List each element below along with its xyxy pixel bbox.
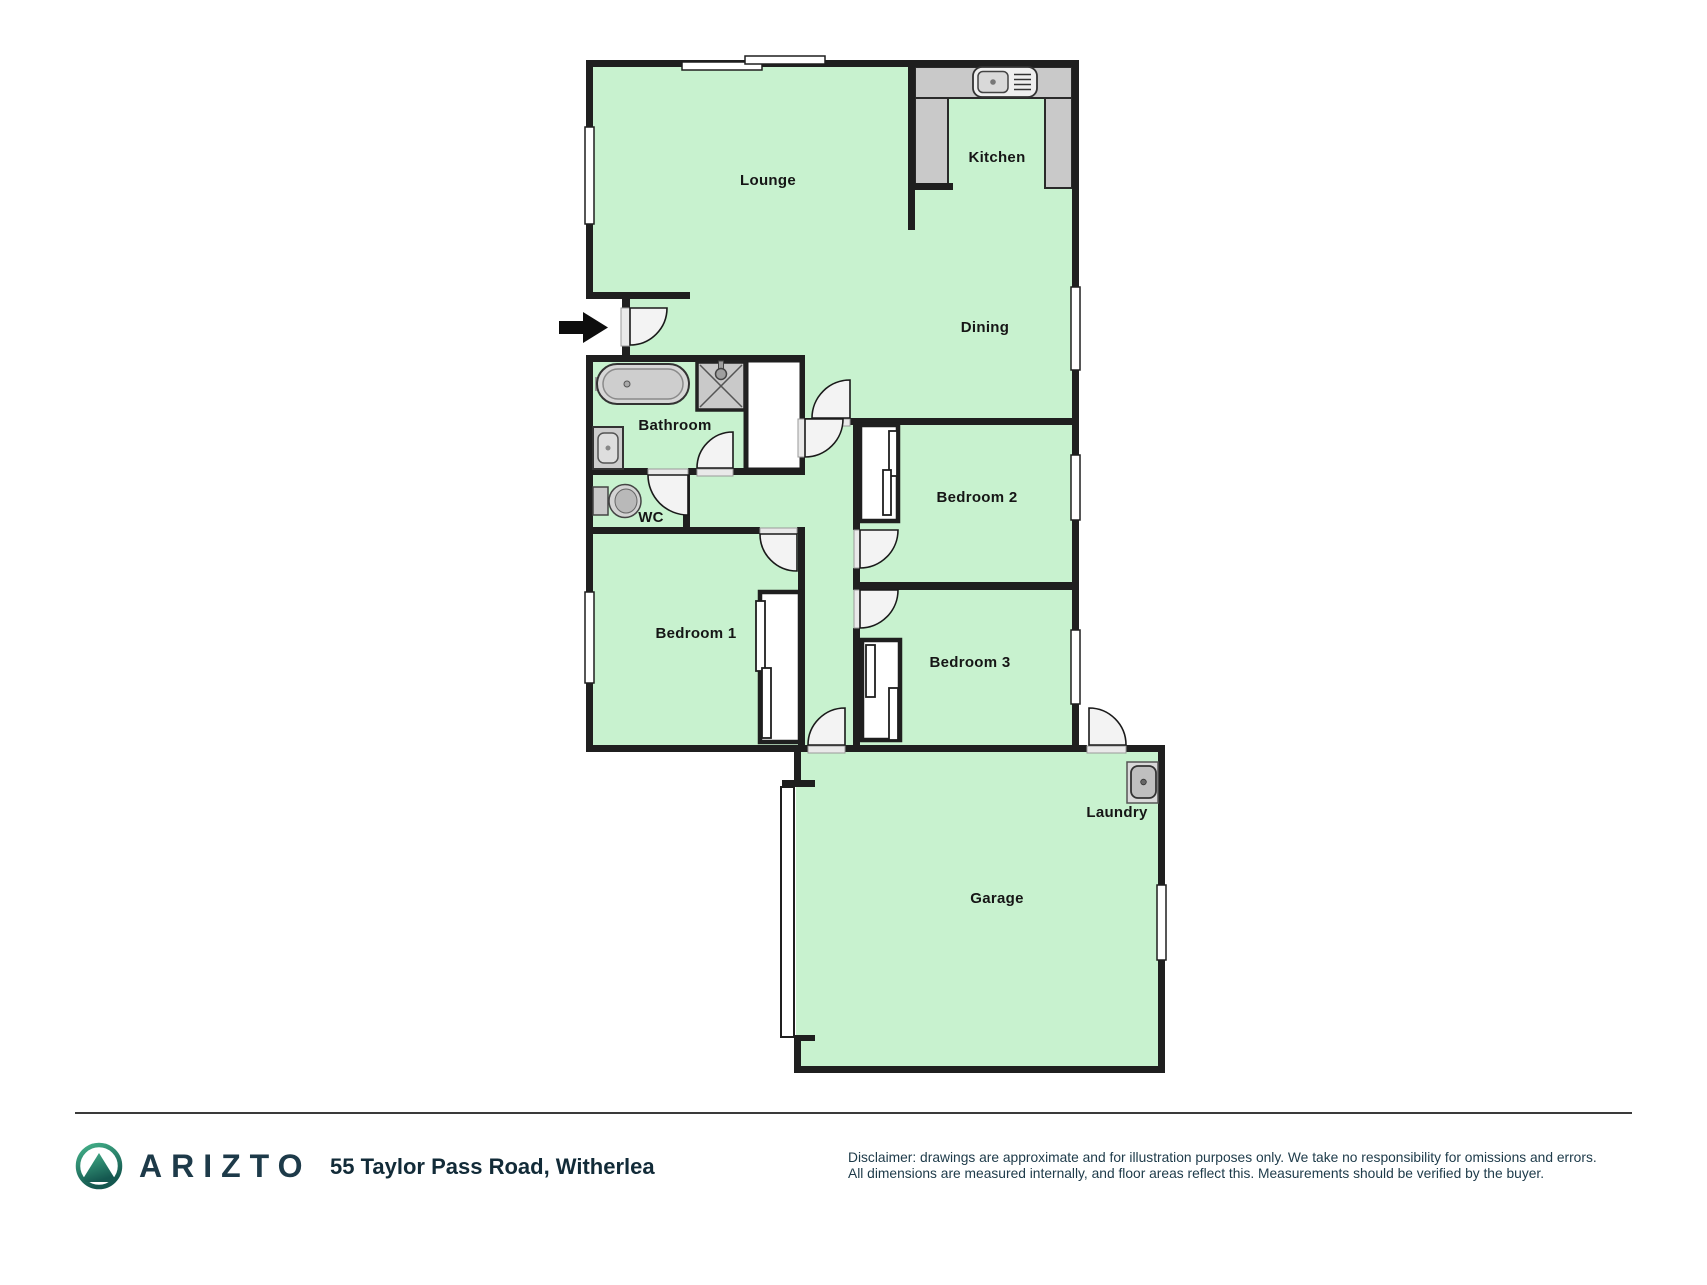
room-label-bedroom1: Bedroom 1 bbox=[655, 625, 736, 642]
bedroom2-wardrobe-panel bbox=[883, 470, 891, 515]
bathtub-icon bbox=[595, 364, 689, 404]
disclaimer-line-1: Disclaimer: drawings are approximate and… bbox=[848, 1150, 1597, 1166]
bathroom-door-leaf bbox=[697, 469, 733, 476]
window-bedroom1-left bbox=[585, 592, 594, 683]
garage-hall-door-leaf bbox=[808, 746, 845, 753]
linen-closet bbox=[746, 360, 802, 470]
laundry-door-swing bbox=[1089, 708, 1126, 745]
bedroom3-wardrobe-panel bbox=[889, 688, 898, 740]
shower-icon bbox=[697, 361, 745, 410]
bedroom1-wardrobe-panel bbox=[756, 601, 765, 671]
room-label-bedroom3: Bedroom 3 bbox=[929, 654, 1010, 671]
window-bedroom3-right bbox=[1071, 630, 1080, 704]
room-label-laundry: Laundry bbox=[1086, 804, 1148, 821]
window-lounge-left bbox=[585, 127, 594, 224]
laundry-tub-icon bbox=[1127, 762, 1158, 803]
window-bedroom2-right bbox=[1071, 455, 1080, 520]
floor-plan: Lounge Kitchen Dining Bathroom WC Bedroo… bbox=[0, 0, 1707, 1280]
brand-wordmark: ARIZTO bbox=[139, 1148, 312, 1185]
kitchen-sink-icon bbox=[973, 67, 1037, 97]
laundry-door-leaf bbox=[1087, 746, 1126, 753]
room-label-lounge: Lounge bbox=[740, 172, 796, 189]
garage-door bbox=[781, 787, 794, 1037]
disclaimer: Disclaimer: drawings are approximate and… bbox=[848, 1150, 1597, 1181]
room-label-dining: Dining bbox=[961, 319, 1009, 336]
window-dining-right bbox=[1071, 287, 1080, 370]
bedroom1-wardrobe-panel bbox=[762, 668, 771, 738]
arizto-logo-icon bbox=[75, 1142, 123, 1190]
room-label-wc: WC bbox=[638, 509, 664, 526]
floor-garage-block bbox=[796, 747, 1163, 1070]
room-label-bedroom2: Bedroom 2 bbox=[936, 489, 1017, 506]
room-label-kitchen: Kitchen bbox=[968, 149, 1025, 166]
brand: ARIZTO bbox=[75, 1142, 312, 1190]
disclaimer-line-2: All dimensions are measured internally, … bbox=[848, 1166, 1597, 1182]
entry-door-leaf bbox=[621, 308, 630, 346]
property-address: 55 Taylor Pass Road, Witherlea bbox=[330, 1154, 655, 1180]
room-label-bathroom: Bathroom bbox=[638, 417, 711, 434]
toilet-icon bbox=[593, 485, 641, 518]
window-lounge-top-2 bbox=[745, 56, 825, 64]
room-label-garage: Garage bbox=[970, 890, 1024, 907]
window-garage-right bbox=[1157, 885, 1166, 960]
footer-divider bbox=[75, 1112, 1632, 1114]
closet-door-leaf bbox=[798, 419, 805, 457]
vanity-sink-icon bbox=[593, 427, 623, 469]
bedroom3-wardrobe-panel bbox=[866, 645, 875, 697]
